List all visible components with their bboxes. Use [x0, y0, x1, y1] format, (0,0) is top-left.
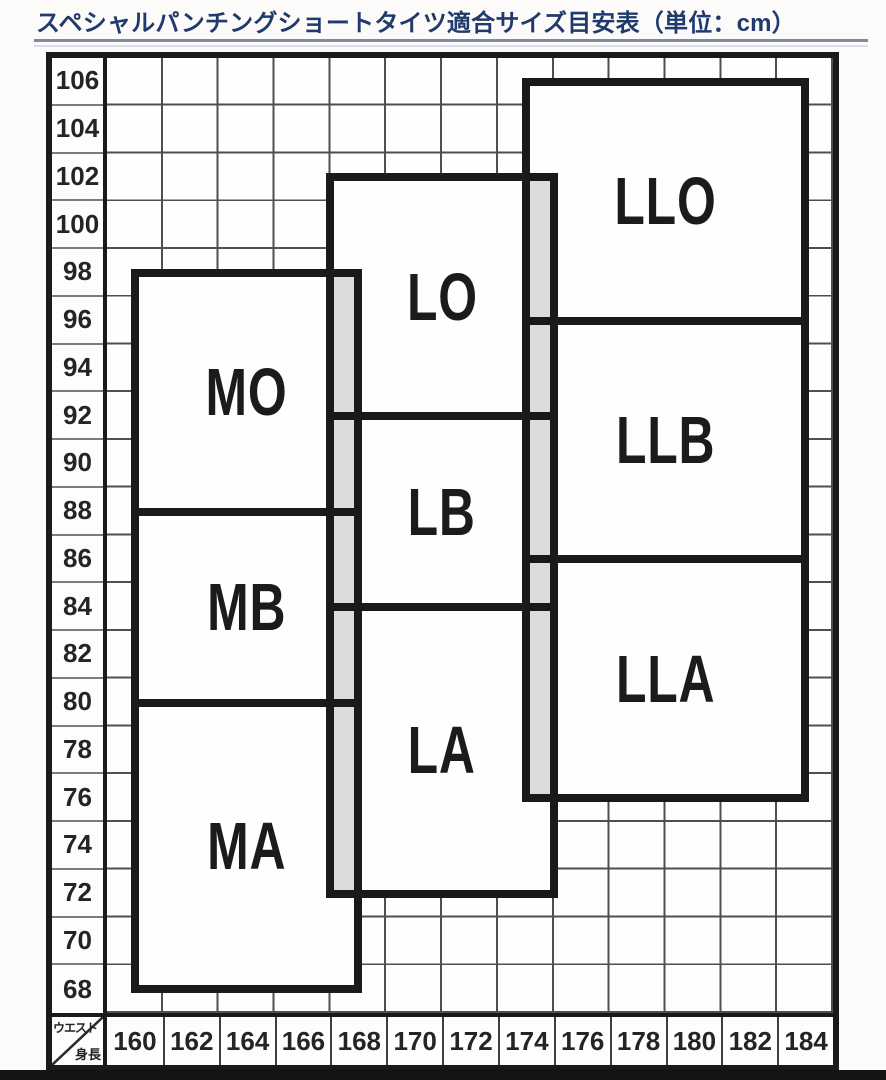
size-region-label-text-MA: MA [207, 807, 286, 884]
y-tick-label-92: 92 [52, 392, 103, 440]
page-title: スペシャルパンチングショートタイツ適合サイズ目安表（単位：cm） [36, 3, 796, 38]
y-tick-label-82: 82 [52, 631, 103, 679]
y-tick-label-102: 102 [52, 154, 103, 202]
size-region-label-text-LLA: LLA [616, 640, 715, 717]
x-tick-label-176: 176 [554, 1017, 610, 1065]
y-tick-label-88: 88 [52, 488, 103, 536]
size-region-label-MO: MO [135, 273, 358, 512]
x-tick-label-174: 174 [498, 1017, 554, 1065]
size-region-label-LO: LO [330, 177, 553, 416]
chart-grid-area: MOMBMALOLBLALLOLLBLLA [107, 58, 833, 1013]
size-chart: 1061041021009896949290888684828078767472… [46, 52, 839, 1071]
size-region-label-LLO: LLO [526, 82, 805, 321]
size-region-label-LLB: LLB [526, 321, 805, 560]
x-tick-label-160: 160 [107, 1017, 163, 1065]
x-tick-label-170: 170 [386, 1017, 442, 1065]
size-region-label-text-LO: LO [407, 258, 478, 335]
x-tick-label-162: 162 [163, 1017, 219, 1065]
x-tick-label-172: 172 [442, 1017, 498, 1065]
corner-label-waist: ウエスト [53, 1019, 97, 1036]
x-tick-label-178: 178 [610, 1017, 666, 1065]
size-region-label-LLA: LLA [526, 559, 805, 798]
y-tick-label-78: 78 [52, 727, 103, 775]
x-tick-label-180: 180 [666, 1017, 722, 1065]
size-region-label-text-LLB: LLB [616, 402, 715, 479]
y-tick-label-72: 72 [52, 870, 103, 918]
y-tick-label-100: 100 [52, 201, 103, 249]
x-tick-label-168: 168 [330, 1017, 386, 1065]
y-tick-label-98: 98 [52, 249, 103, 297]
size-region-label-MB: MB [135, 512, 358, 703]
axis-corner-cell: ウエスト 身長 [52, 1017, 107, 1065]
y-tick-label-70: 70 [52, 918, 103, 966]
size-region-label-text-LLO: LLO [614, 163, 716, 240]
size-region-label-MA: MA [135, 703, 358, 990]
size-region-label-text-LB: LB [408, 473, 476, 550]
y-tick-label-94: 94 [52, 345, 103, 393]
x-tick-label-182: 182 [721, 1017, 777, 1065]
y-tick-label-68: 68 [52, 965, 103, 1013]
title-divider [34, 39, 868, 42]
size-region-label-text-MB: MB [207, 569, 286, 646]
x-axis-label-row: ウエスト 身長 16016216416616817017217417617818… [52, 1013, 833, 1065]
y-tick-label-80: 80 [52, 679, 103, 727]
y-tick-label-90: 90 [52, 440, 103, 488]
y-tick-label-84: 84 [52, 583, 103, 631]
y-tick-label-76: 76 [52, 774, 103, 822]
y-tick-label-74: 74 [52, 822, 103, 870]
x-tick-label-184: 184 [777, 1017, 833, 1065]
x-tick-label-166: 166 [275, 1017, 331, 1065]
size-region-label-text-MO: MO [206, 354, 288, 431]
size-region-label-text-LA: LA [408, 712, 476, 789]
y-tick-label-96: 96 [52, 297, 103, 345]
size-region-label-LB: LB [330, 416, 553, 607]
y-tick-label-106: 106 [52, 58, 103, 106]
x-tick-label-164: 164 [219, 1017, 275, 1065]
y-axis-label-column: 1061041021009896949290888684828078767472… [52, 58, 107, 1013]
y-tick-label-104: 104 [52, 106, 103, 154]
corner-label-height: 身長 [75, 1044, 101, 1063]
title-divider-highlight [34, 45, 868, 47]
y-tick-label-86: 86 [52, 536, 103, 584]
bottom-edge-bar [0, 1070, 886, 1080]
size-region-label-LA: LA [330, 607, 553, 894]
